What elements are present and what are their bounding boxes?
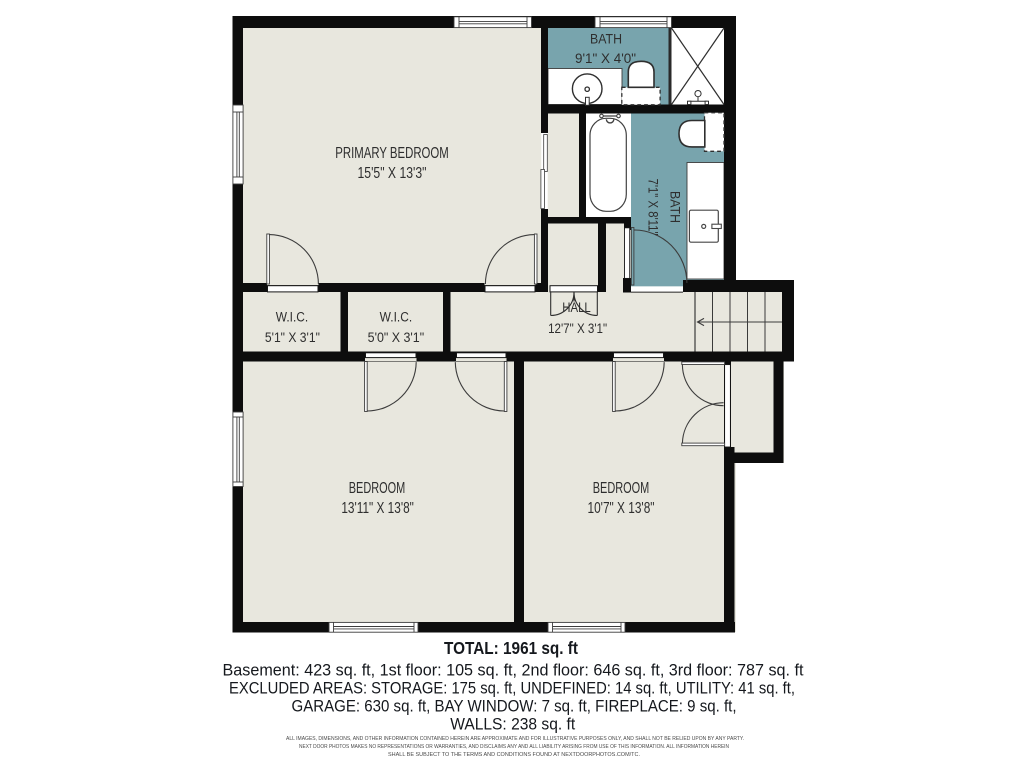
svg-text:5'0" X 3'1": 5'0" X 3'1" bbox=[368, 330, 425, 345]
svg-text:PRIMARY BEDROOM: PRIMARY BEDROOM bbox=[335, 145, 449, 162]
svg-text:HALL: HALL bbox=[562, 300, 591, 315]
svg-text:BATH: BATH bbox=[590, 31, 622, 47]
svg-text:NEXT DOOR PHOTOS MAKES NO REPR: NEXT DOOR PHOTOS MAKES NO REPRESENTATION… bbox=[299, 744, 729, 750]
svg-text:W.I.C.: W.I.C. bbox=[380, 310, 413, 325]
svg-text:GARAGE: 630 sq. ft, BAY WINDOW: GARAGE: 630 sq. ft, BAY WINDOW: 7 sq. ft… bbox=[292, 697, 737, 716]
svg-text:10'7" X 13'8": 10'7" X 13'8" bbox=[588, 500, 655, 517]
svg-text:BATH: BATH bbox=[667, 191, 683, 223]
svg-text:5'1" X 3'1": 5'1" X 3'1" bbox=[265, 330, 320, 345]
svg-text:Basement: 423 sq. ft, 1st floo: Basement: 423 sq. ft, 1st floor: 105 sq.… bbox=[223, 661, 804, 680]
svg-text:BEDROOM: BEDROOM bbox=[349, 480, 406, 497]
svg-text:BEDROOM: BEDROOM bbox=[593, 480, 650, 497]
svg-text:TOTAL: 1961 sq. ft: TOTAL: 1961 sq. ft bbox=[444, 638, 578, 658]
svg-text:EXCLUDED AREAS: STORAGE: 175 s: EXCLUDED AREAS: STORAGE: 175 sq. ft, UND… bbox=[229, 679, 795, 698]
svg-text:7'1" X 8'11": 7'1" X 8'11" bbox=[645, 179, 661, 236]
svg-text:W.I.C.: W.I.C. bbox=[276, 310, 309, 325]
svg-text:13'11" X 13'8": 13'11" X 13'8" bbox=[341, 500, 414, 517]
svg-text:12'7" X 3'1": 12'7" X 3'1" bbox=[548, 321, 607, 336]
svg-text:ALL IMAGES, DIMENSIONS, AND OT: ALL IMAGES, DIMENSIONS, AND OTHER INFORM… bbox=[286, 736, 744, 742]
svg-text:15'5" X 13'3": 15'5" X 13'3" bbox=[358, 165, 427, 182]
svg-text:9'1" X 4'0": 9'1" X 4'0" bbox=[575, 50, 636, 66]
svg-text:WALLS: 238 sq. ft: WALLS: 238 sq. ft bbox=[450, 715, 575, 734]
svg-text:SHALL BE SUBJECT TO THE TERMS: SHALL BE SUBJECT TO THE TERMS AND CONDIT… bbox=[388, 752, 640, 758]
